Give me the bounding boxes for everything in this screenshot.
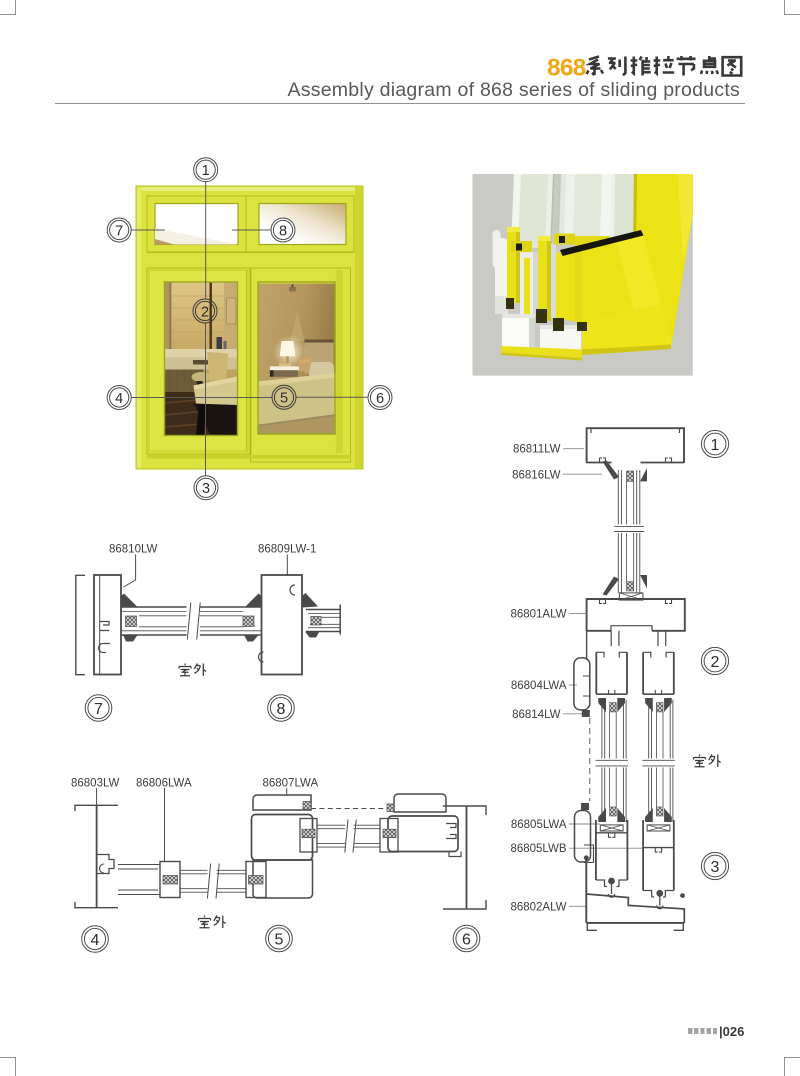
svg-text:86811LW: 86811LW [513,443,561,455]
svg-text:3: 3 [711,859,720,876]
svg-text:86809LW-1: 86809LW-1 [258,544,316,556]
svg-text:86801ALW: 86801ALW [510,608,566,620]
svg-text:1: 1 [711,437,720,454]
svg-text:1: 1 [202,163,210,179]
svg-text:5: 5 [280,391,288,407]
svg-text:6: 6 [462,931,471,948]
svg-text:86805LWA: 86805LWA [511,819,567,831]
svg-text:6: 6 [376,391,384,407]
svg-text:868: 868 [547,55,586,82]
svg-text:86802ALW: 86802ALW [510,901,566,913]
svg-text:3: 3 [202,481,210,497]
svg-text:2: 2 [711,654,720,671]
svg-text:86804LWA: 86804LWA [511,680,567,692]
svg-text:86810LW: 86810LW [109,544,158,556]
svg-text:7: 7 [115,223,123,239]
svg-text:8: 8 [279,223,287,239]
svg-text:86816LW: 86816LW [512,469,561,481]
svg-text:86807LWA: 86807LWA [263,778,319,790]
svg-text:7: 7 [94,701,103,718]
svg-text:2: 2 [201,304,209,320]
svg-text:86805LWB: 86805LWB [510,843,566,855]
svg-text:86803LW: 86803LW [71,778,120,790]
svg-text:5: 5 [275,931,284,948]
svg-text:8: 8 [277,701,286,718]
svg-text:4: 4 [115,391,123,407]
svg-text:86814LW: 86814LW [512,709,561,721]
svg-text:4: 4 [91,932,100,949]
svg-text:86806LWA: 86806LWA [136,778,192,790]
